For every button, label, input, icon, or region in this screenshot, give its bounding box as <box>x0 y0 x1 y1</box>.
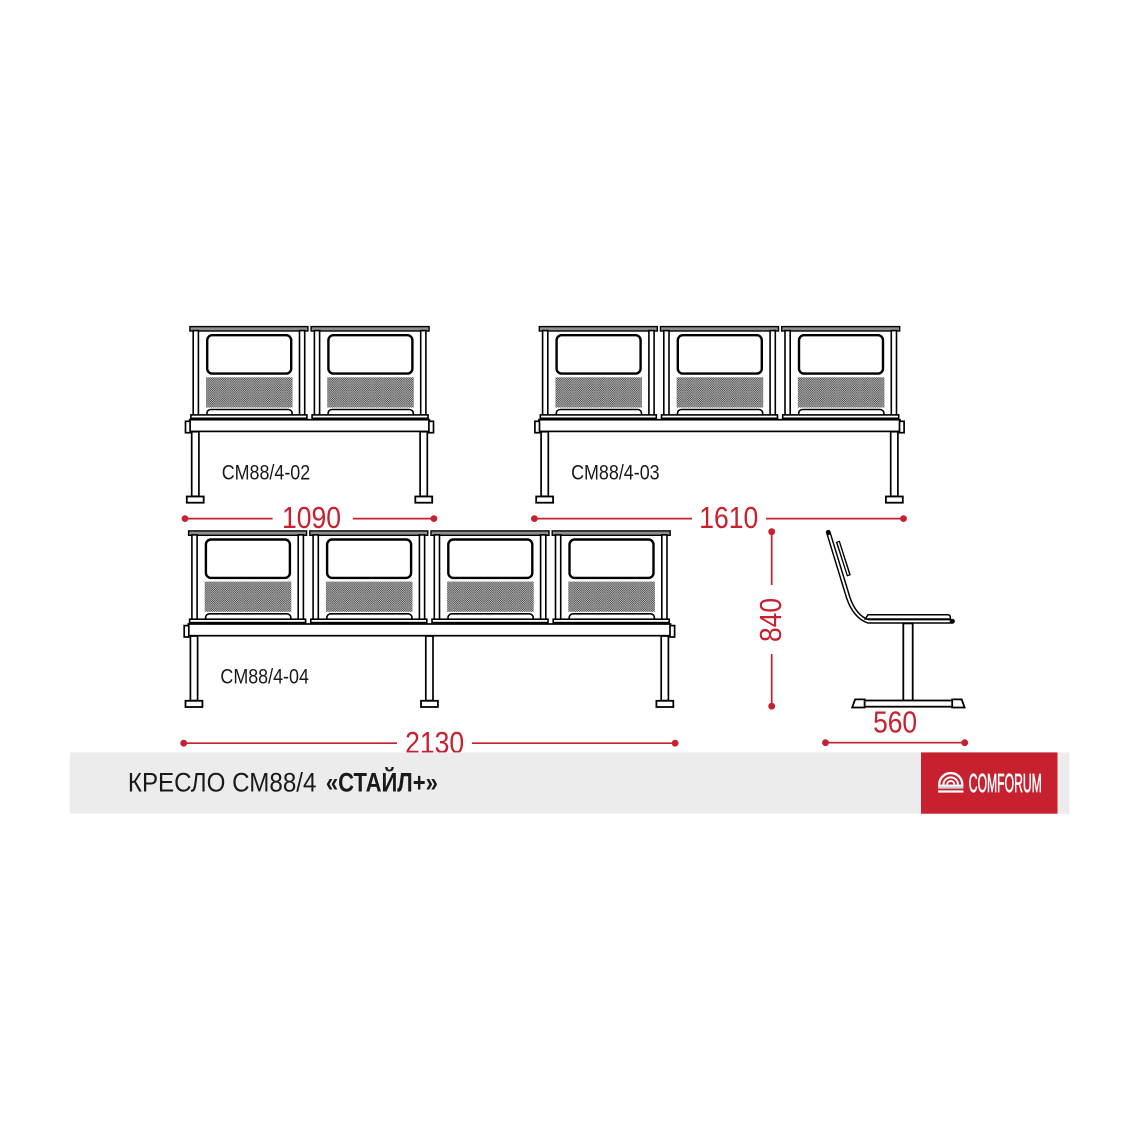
svg-text:CM88/4-04: CM88/4-04 <box>220 666 309 689</box>
svg-text:840: 840 <box>754 598 788 642</box>
svg-text:CM88/4-02: CM88/4-02 <box>222 461 311 484</box>
svg-text:CM88/4-03: CM88/4-03 <box>571 461 660 484</box>
svg-text:1090: 1090 <box>282 501 341 535</box>
svg-text:«СТАЙЛ+»: «СТАЙЛ+» <box>326 766 438 797</box>
svg-text:КРЕСЛО СМ88/4: КРЕСЛО СМ88/4 <box>128 767 317 797</box>
svg-text:560: 560 <box>873 706 917 740</box>
svg-text:COMFORUM: COMFORUM <box>969 768 1042 798</box>
svg-text:1610: 1610 <box>699 501 758 535</box>
